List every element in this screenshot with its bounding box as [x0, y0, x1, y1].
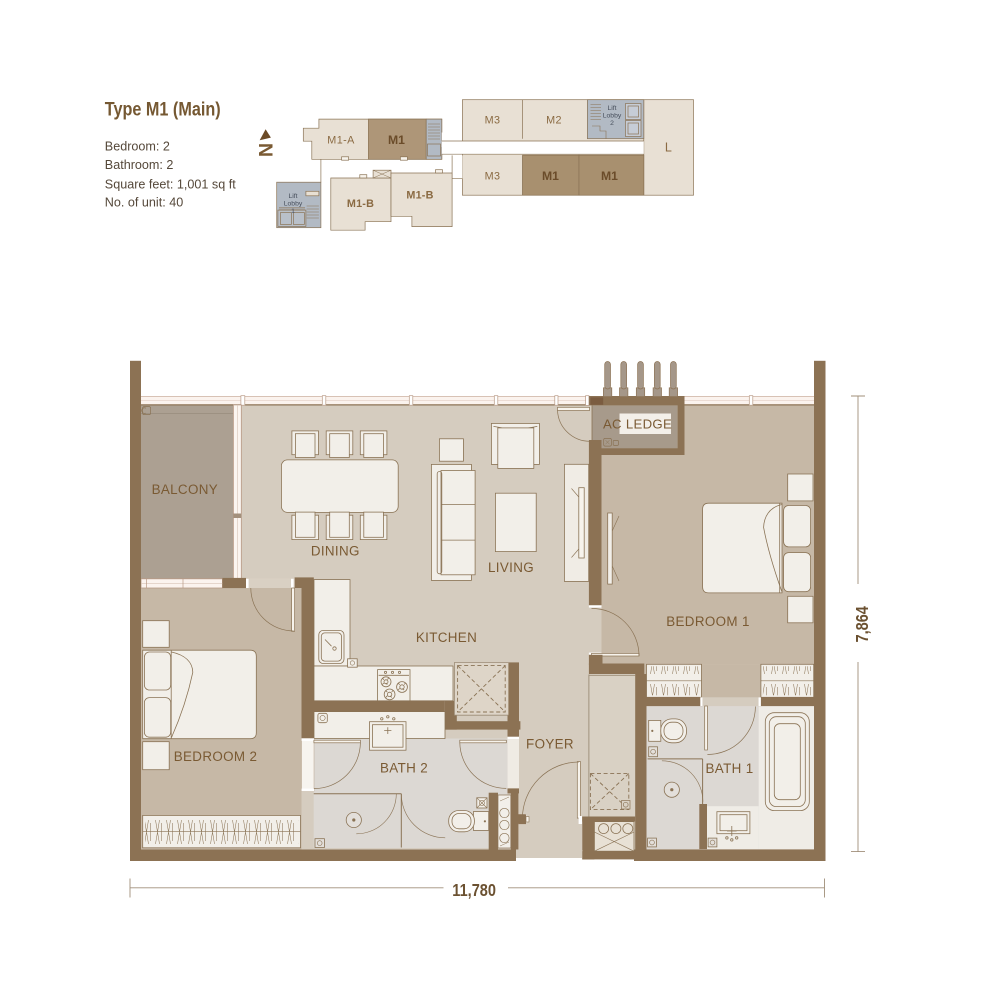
svg-text:M1: M1	[542, 169, 559, 183]
svg-text:L: L	[665, 141, 672, 155]
svg-text:Lobby: Lobby	[603, 113, 622, 120]
svg-text:M3: M3	[485, 171, 501, 183]
svg-text:Lift: Lift	[288, 193, 297, 200]
svg-text:Bathroom: 2: Bathroom: 2	[105, 158, 174, 172]
svg-text:N: N	[256, 143, 278, 157]
svg-text:M1-B: M1-B	[347, 198, 374, 210]
svg-text:LIVING: LIVING	[488, 560, 534, 575]
svg-text:DINING: DINING	[311, 544, 360, 559]
svg-text:M1: M1	[388, 133, 405, 147]
svg-text:Bedroom: 2: Bedroom: 2	[105, 139, 170, 153]
svg-text:M1-A: M1-A	[327, 135, 355, 147]
svg-text:Type M1 (Main): Type M1 (Main)	[105, 98, 221, 120]
svg-text:11,780: 11,780	[452, 882, 496, 900]
svg-text:1: 1	[291, 208, 295, 215]
svg-text:Lift: Lift	[607, 105, 616, 112]
svg-text:7,864: 7,864	[854, 606, 872, 642]
svg-text:M1: M1	[601, 169, 618, 183]
svg-text:2: 2	[610, 120, 614, 127]
svg-text:M2: M2	[546, 115, 562, 127]
svg-text:BEDROOM 1: BEDROOM 1	[666, 614, 750, 629]
svg-text:BATH 2: BATH 2	[380, 761, 428, 776]
svg-text:Lobby: Lobby	[284, 201, 303, 208]
svg-text:BALCONY: BALCONY	[152, 482, 218, 497]
svg-text:AC LEDGE: AC LEDGE	[603, 417, 672, 432]
svg-text:No. of unit: 40: No. of unit: 40	[105, 195, 183, 209]
svg-text:FOYER: FOYER	[526, 737, 574, 752]
svg-text:KITCHEN: KITCHEN	[416, 630, 477, 645]
svg-text:M3: M3	[485, 115, 501, 127]
svg-text:BEDROOM 2: BEDROOM 2	[174, 749, 258, 764]
svg-text:Square feet: 1,001 sq ft: Square feet: 1,001 sq ft	[105, 177, 236, 191]
svg-text:M1-B: M1-B	[406, 190, 433, 202]
svg-text:BATH 1: BATH 1	[706, 761, 754, 776]
